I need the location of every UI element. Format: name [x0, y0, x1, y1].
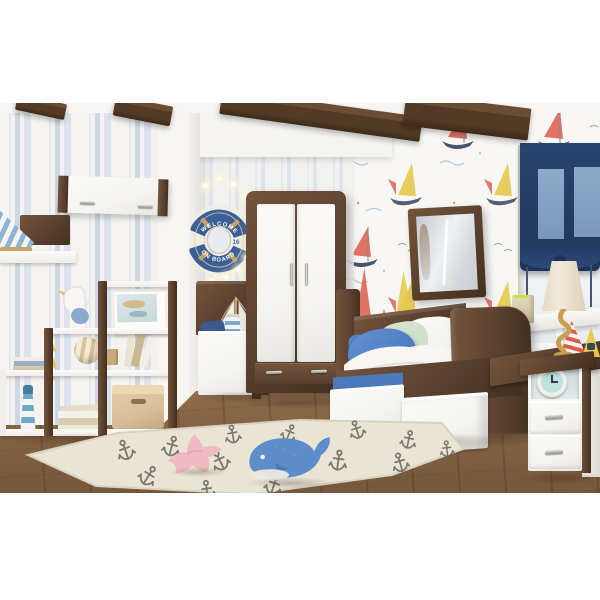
shadow: [168, 467, 228, 477]
room-photo: WELCOME ON BOARD 16: [0, 103, 600, 493]
whale-eye: [260, 455, 265, 460]
shadow: [246, 477, 336, 489]
